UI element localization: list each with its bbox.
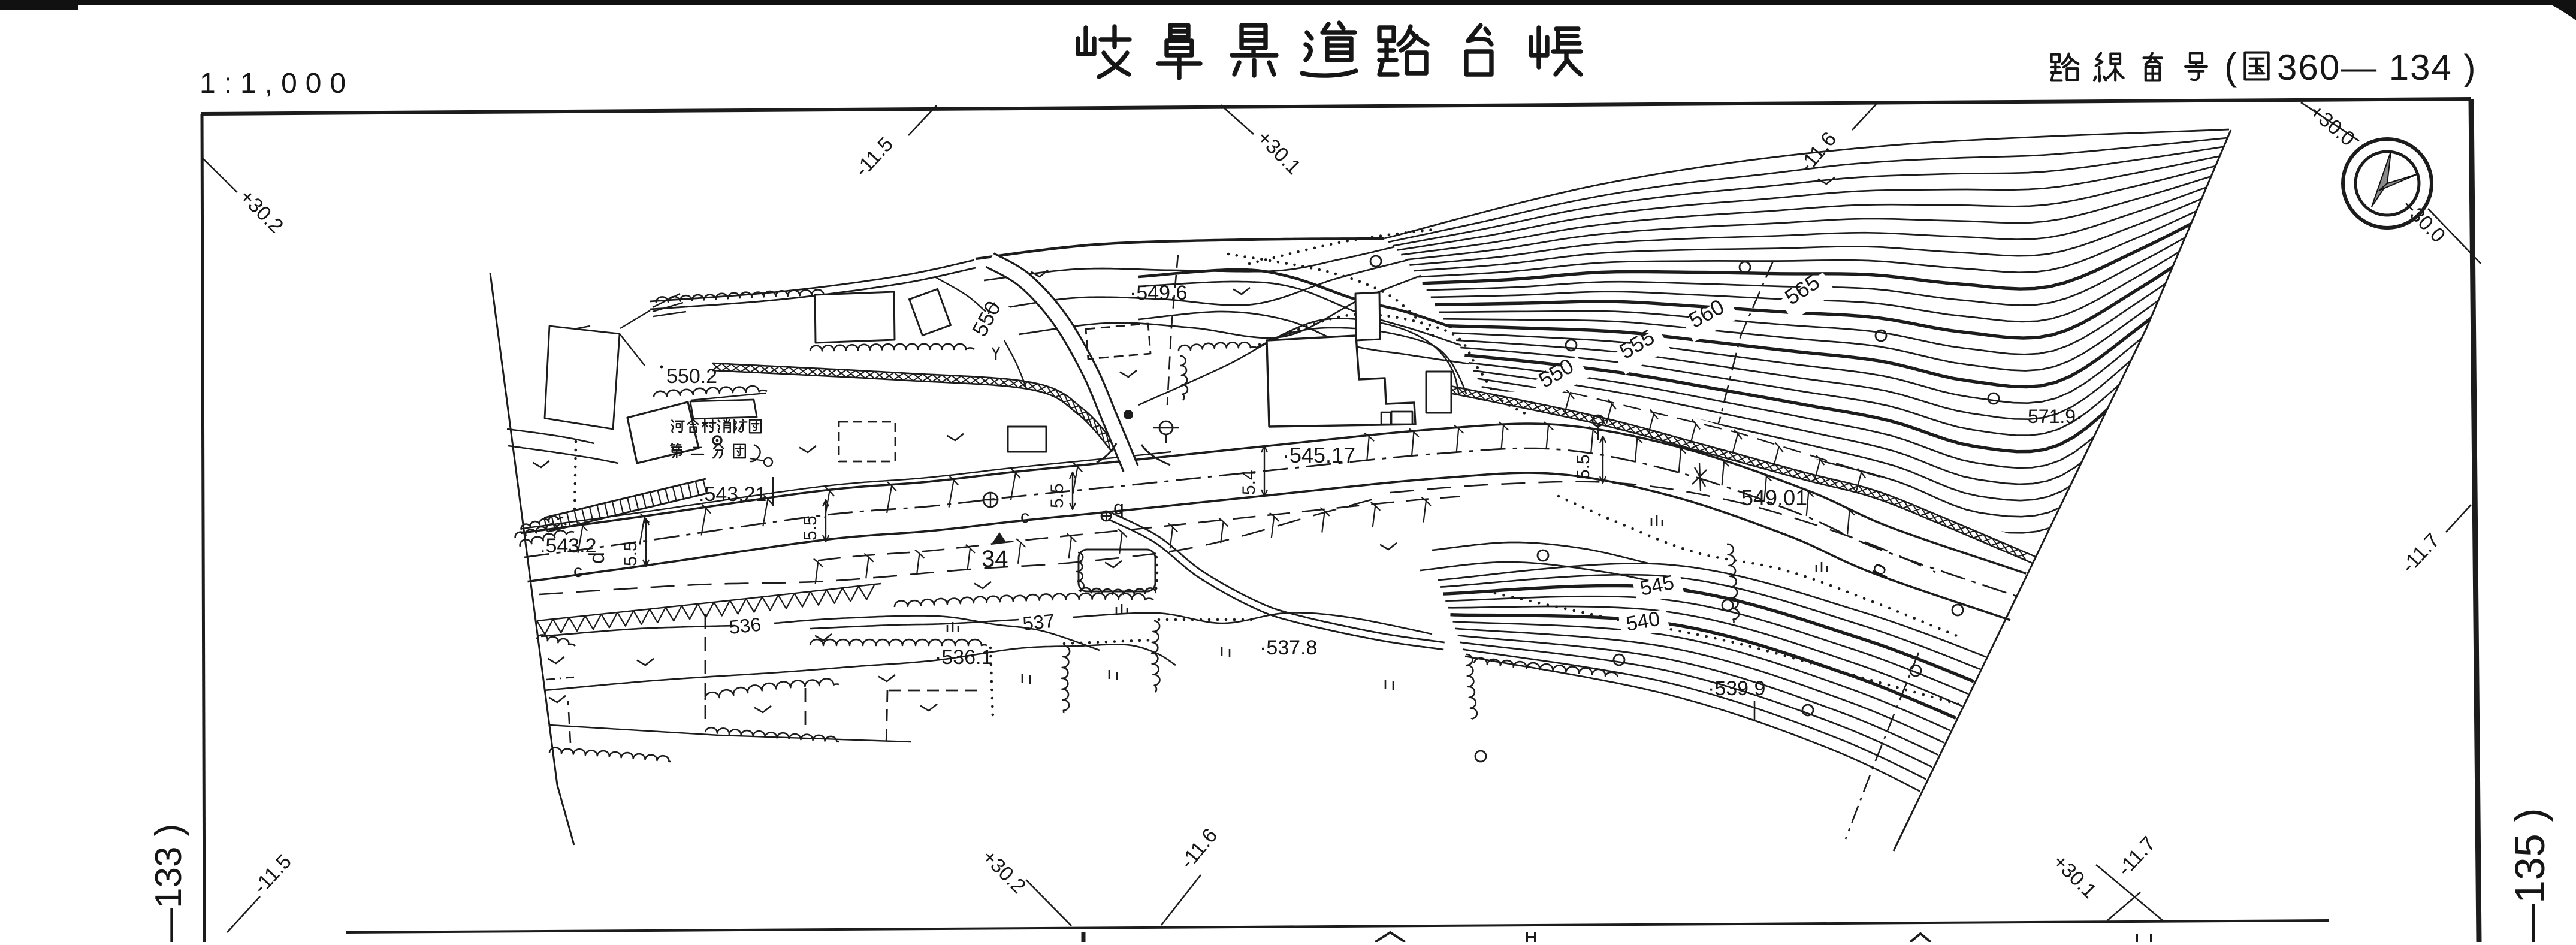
svg-text:571.9·: 571.9· bbox=[2028, 406, 2082, 427]
svg-text:—133 ): —133 ) bbox=[148, 824, 189, 942]
svg-text:—135 ): —135 ) bbox=[2506, 808, 2553, 942]
svg-text:360— 134 ): 360— 134 ) bbox=[2277, 47, 2477, 87]
svg-text:·536.1: ·536.1 bbox=[935, 646, 992, 669]
svg-text:d: d bbox=[584, 552, 609, 564]
svg-text:549.01: 549.01 bbox=[1741, 485, 1807, 510]
svg-text:c: c bbox=[573, 561, 582, 581]
svg-text:·539.9: ·539.9 bbox=[1708, 677, 1765, 700]
svg-text:·549.6: ·549.6 bbox=[1130, 282, 1187, 304]
svg-text:·545.17: ·545.17 bbox=[1282, 443, 1355, 467]
svg-text:q: q bbox=[1113, 497, 1124, 518]
svg-text:·537.8: ·537.8 bbox=[1260, 636, 1317, 659]
svg-text:5.5: 5.5 bbox=[621, 541, 641, 566]
svg-text:1:1,000: 1:1,000 bbox=[200, 68, 354, 99]
svg-text:.543.21: .543.21 bbox=[699, 483, 766, 506]
svg-text:5.4: 5.4 bbox=[1239, 470, 1259, 495]
svg-text:5.5: 5.5 bbox=[1047, 483, 1067, 508]
svg-text:c: c bbox=[1020, 507, 1029, 527]
svg-text:5.5: 5.5 bbox=[801, 515, 820, 541]
svg-text:536: 536 bbox=[728, 614, 762, 638]
svg-text:550.2: 550.2 bbox=[666, 365, 717, 388]
svg-text:537: 537 bbox=[1022, 610, 1056, 635]
svg-text:5.5: 5.5 bbox=[1574, 454, 1593, 479]
svg-text:34: 34 bbox=[982, 546, 1008, 572]
svg-text:(: ( bbox=[2224, 45, 2237, 88]
